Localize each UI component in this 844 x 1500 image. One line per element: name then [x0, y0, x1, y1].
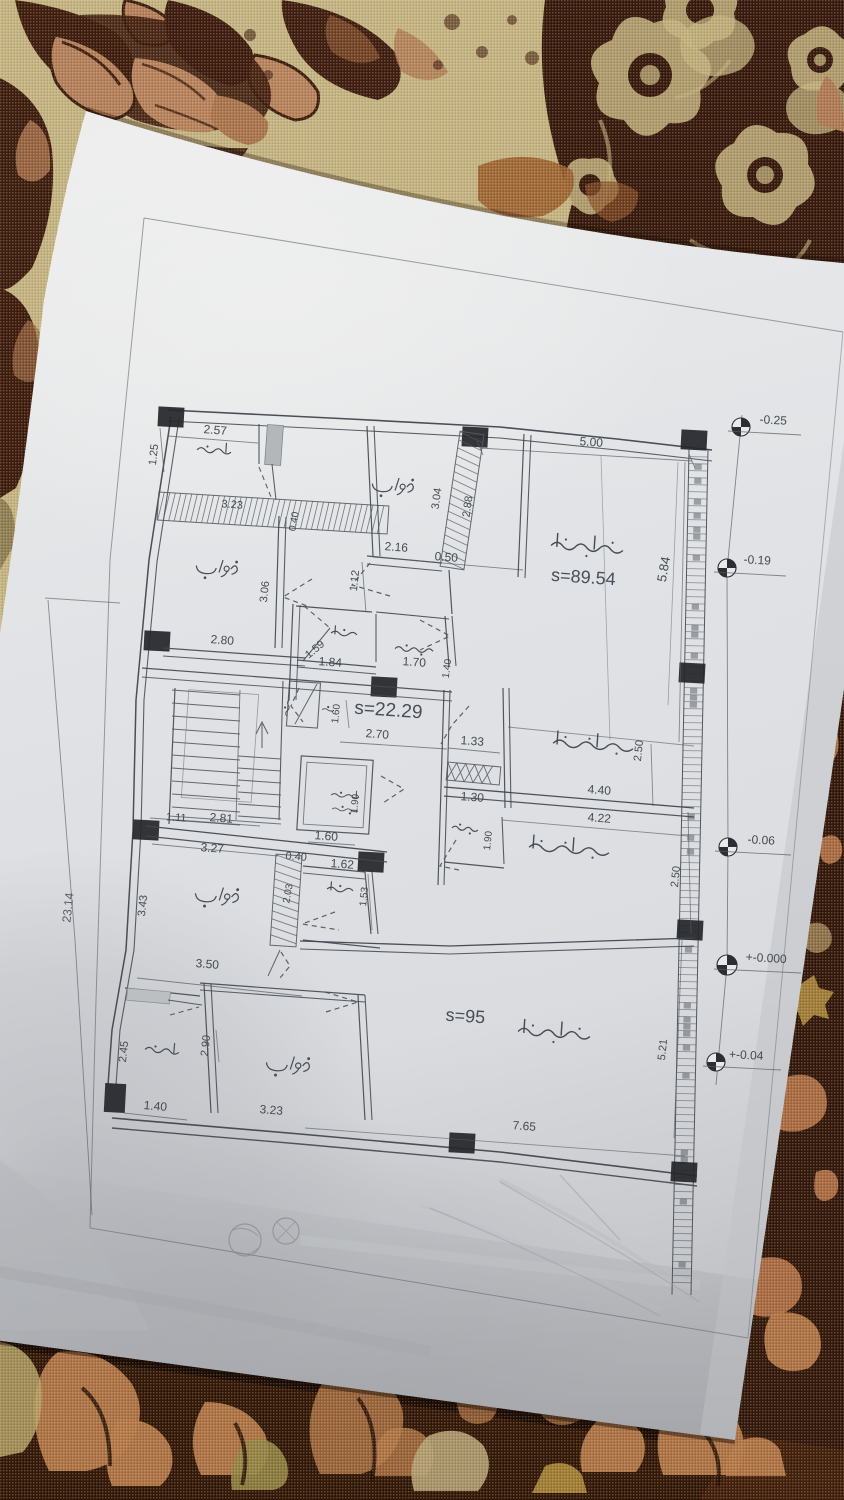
svg-text:2.70: 2.70: [365, 726, 390, 742]
svg-text:1.53: 1.53: [358, 886, 371, 907]
svg-text:-0.25: -0.25: [759, 412, 787, 427]
svg-text:2.50: 2.50: [669, 865, 683, 888]
svg-text:2.90: 2.90: [199, 1034, 213, 1057]
svg-text:+-0.000: +-0.000: [745, 950, 787, 966]
svg-text:1.90: 1.90: [349, 793, 362, 814]
svg-text:2.50: 2.50: [632, 739, 646, 762]
svg-text:1.30: 1.30: [460, 789, 485, 805]
svg-text:7.65: 7.65: [512, 1118, 537, 1134]
svg-text:3.50: 3.50: [195, 956, 220, 972]
svg-text:3.23: 3.23: [259, 1102, 284, 1118]
svg-text:1.12: 1.12: [348, 569, 362, 592]
svg-text:1.25: 1.25: [147, 443, 161, 466]
svg-text:2.45: 2.45: [117, 1040, 131, 1063]
svg-text:3.27: 3.27: [200, 840, 225, 856]
svg-text:3.43: 3.43: [136, 894, 150, 917]
svg-text:1.40: 1.40: [143, 1098, 168, 1114]
svg-text:5.00: 5.00: [579, 434, 604, 450]
svg-text:2.81: 2.81: [209, 810, 234, 826]
svg-text:3.06: 3.06: [258, 580, 272, 603]
svg-text:s=95: s=95: [445, 1005, 486, 1028]
svg-text:0.50: 0.50: [434, 549, 459, 565]
svg-text:5.21: 5.21: [656, 1038, 670, 1061]
svg-text:+-0.04: +-0.04: [729, 1047, 764, 1063]
svg-text:1.70: 1.70: [402, 654, 427, 670]
svg-text:1.33: 1.33: [460, 733, 485, 749]
svg-text:2.57: 2.57: [203, 422, 228, 438]
svg-text:1.11: 1.11: [166, 811, 187, 824]
svg-text:-0.19: -0.19: [743, 552, 771, 567]
svg-text:1.84: 1.84: [318, 654, 343, 670]
svg-text:4.22: 4.22: [587, 810, 612, 826]
svg-text:1.60: 1.60: [314, 828, 339, 844]
svg-text:1.60: 1.60: [330, 703, 343, 724]
svg-text:2.16: 2.16: [384, 539, 409, 555]
svg-text:3.23: 3.23: [221, 498, 243, 511]
svg-text:1.90: 1.90: [482, 830, 495, 851]
svg-text:-0.06: -0.06: [747, 832, 775, 847]
svg-text:2.80: 2.80: [210, 632, 235, 648]
svg-text:4.40: 4.40: [587, 782, 612, 798]
